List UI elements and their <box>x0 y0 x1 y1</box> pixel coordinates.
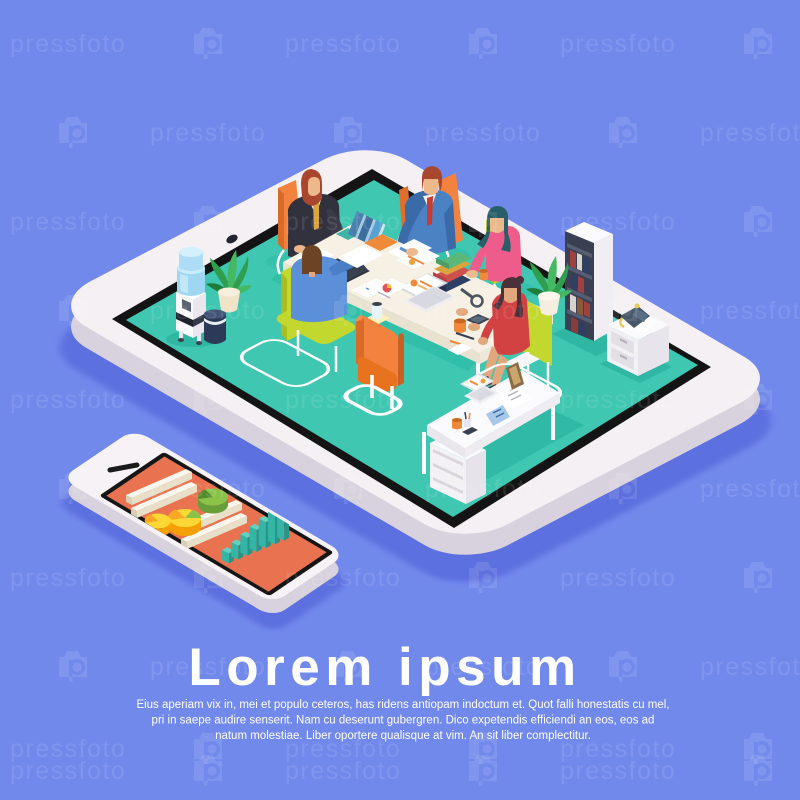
svg-text:pressfoto: pressfoto <box>560 208 676 236</box>
svg-text:pressfoto: pressfoto <box>560 386 676 414</box>
svg-text:pressfoto: pressfoto <box>285 757 401 785</box>
svg-text:pressfoto: pressfoto <box>560 30 676 58</box>
svg-text:pressfoto: pressfoto <box>10 757 126 785</box>
svg-text:pressfoto: pressfoto <box>560 757 676 785</box>
svg-text:pressfoto: pressfoto <box>150 475 266 503</box>
svg-text:pressfoto: pressfoto <box>285 30 401 58</box>
svg-text:pressfoto: pressfoto <box>285 386 401 414</box>
svg-text:Eius aperiam vix in, mei et po: Eius aperiam vix in, mei et populo ceter… <box>136 699 669 711</box>
svg-text:natum molestiae. Liber oporter: natum molestiae. Liber oportere qualisqu… <box>215 730 591 742</box>
svg-text:pressfoto: pressfoto <box>700 653 800 681</box>
svg-text:pressfoto: pressfoto <box>700 119 800 147</box>
svg-text:pressfoto: pressfoto <box>425 653 541 681</box>
svg-text:pressfoto: pressfoto <box>425 475 541 503</box>
svg-text:pressfoto: pressfoto <box>10 30 126 58</box>
svg-text:pressfoto: pressfoto <box>700 297 800 325</box>
svg-text:pressfoto: pressfoto <box>560 564 676 592</box>
svg-text:pri in saepe audire senserit.: pri in saepe audire senserit. Nam cu des… <box>152 715 655 727</box>
svg-text:pressfoto: pressfoto <box>285 564 401 592</box>
svg-text:pressfoto: pressfoto <box>10 564 126 592</box>
svg-text:pressfoto: pressfoto <box>285 208 401 236</box>
svg-text:pressfoto: pressfoto <box>150 297 266 325</box>
svg-text:pressfoto: pressfoto <box>10 208 126 236</box>
svg-text:pressfoto: pressfoto <box>150 119 266 147</box>
svg-text:pressfoto: pressfoto <box>10 386 126 414</box>
svg-text:pressfoto: pressfoto <box>425 119 541 147</box>
svg-text:pressfoto: pressfoto <box>150 653 266 681</box>
svg-text:pressfoto: pressfoto <box>700 475 800 503</box>
svg-text:pressfoto: pressfoto <box>425 297 541 325</box>
